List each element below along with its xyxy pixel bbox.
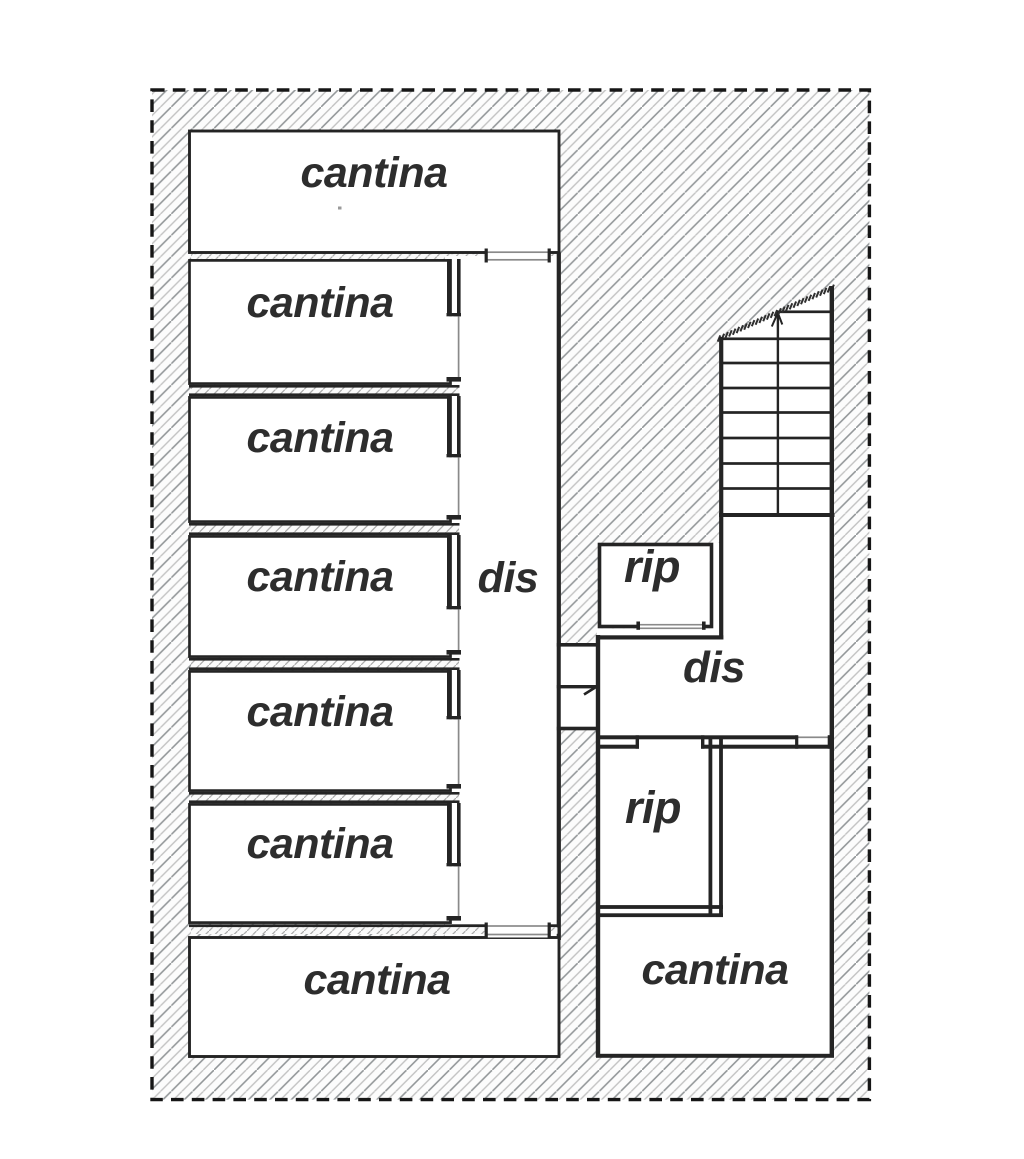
svg-text:rip: rip — [624, 541, 680, 592]
svg-text:cantina: cantina — [246, 414, 393, 462]
svg-text:cantina: cantina — [641, 946, 788, 994]
svg-text:cantina: cantina — [246, 688, 393, 736]
svg-text:cantina: cantina — [300, 149, 447, 197]
svg-text:rip: rip — [625, 782, 681, 833]
svg-text:dis: dis — [683, 643, 745, 692]
svg-text:cantina: cantina — [246, 553, 393, 601]
svg-text:cantina: cantina — [303, 956, 450, 1004]
svg-text:cantina: cantina — [246, 820, 393, 868]
svg-text:dis: dis — [478, 554, 539, 602]
svg-text:cantina: cantina — [246, 279, 393, 327]
